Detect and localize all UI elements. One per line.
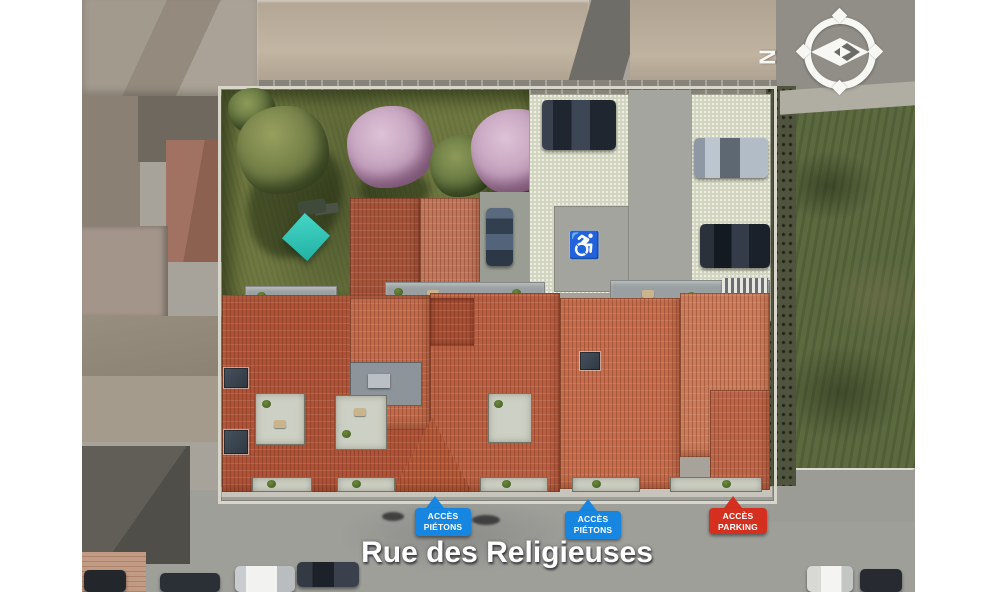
green-field [792, 92, 915, 468]
sign-line: PARKING [709, 522, 767, 533]
parked-car-dark [542, 100, 616, 150]
page: ♿ [0, 0, 1000, 592]
main-roof-section [560, 298, 680, 489]
neighbor-roof [82, 0, 260, 98]
pedestrian-access-sign: ACCÈS PIÉTONS [565, 511, 621, 539]
olive-tree [237, 106, 329, 194]
street-name-label: Rue des Religieuses [357, 536, 657, 570]
compass-north-letter: N [755, 41, 781, 65]
parked-car-dark [700, 224, 770, 268]
parked-car-white [807, 566, 853, 592]
sign-line: ACCÈS [565, 514, 621, 525]
neighbor-roof [82, 96, 140, 228]
pink-blossom-tree [347, 106, 433, 188]
patio-plant [342, 430, 351, 438]
neighbor-roof [166, 140, 222, 262]
solar-panel [224, 368, 248, 388]
parked-car [297, 562, 359, 587]
neighbor-roof [82, 316, 222, 378]
parked-car-blue [486, 208, 513, 266]
parked-car [860, 569, 902, 592]
sign-line: PIÉTONS [415, 522, 471, 533]
neighbor-roof [82, 446, 190, 564]
parked-car-silver [694, 138, 768, 178]
entry-plant [592, 480, 601, 488]
parked-car [160, 573, 220, 592]
entry-plant [722, 480, 731, 488]
skylight [580, 352, 600, 370]
patio-furniture [354, 408, 366, 416]
main-roof-section [710, 390, 770, 490]
rooftop-vent [368, 374, 390, 388]
sign-line: ACCÈS [709, 511, 767, 522]
pedestrian [382, 512, 404, 521]
entry-garden [480, 477, 548, 492]
neighbor-roof [82, 376, 222, 442]
entry-garden [337, 477, 395, 492]
parking-access-sign: ACCÈS PARKING [709, 508, 767, 534]
neighbor-roof [257, 0, 589, 92]
entry-garden [572, 477, 640, 492]
pedestrian-access-sign: ACCÈS PIÉTONS [415, 508, 471, 536]
accessible-parking-icon: ♿ [568, 232, 600, 258]
terrace-furniture [642, 290, 654, 298]
entry-garden [670, 477, 762, 492]
scooter [472, 515, 500, 525]
entry-plant [352, 480, 361, 488]
parked-car [84, 570, 126, 592]
entry-plant [502, 480, 511, 488]
entry-garden [252, 477, 312, 492]
aerial-photo: ♿ [82, 0, 915, 592]
entry-plant [267, 480, 276, 488]
sign-line: PIÉTONS [565, 525, 621, 536]
sign-line: ACCÈS [415, 511, 471, 522]
patio-courtyard [335, 395, 387, 450]
patio-furniture [274, 420, 286, 428]
parked-van-white [235, 566, 295, 592]
roof-tower [430, 298, 474, 346]
patio-plant [262, 400, 271, 408]
solar-panel [224, 430, 248, 454]
neighbor-roof [82, 226, 168, 318]
patio-plant [494, 400, 503, 408]
